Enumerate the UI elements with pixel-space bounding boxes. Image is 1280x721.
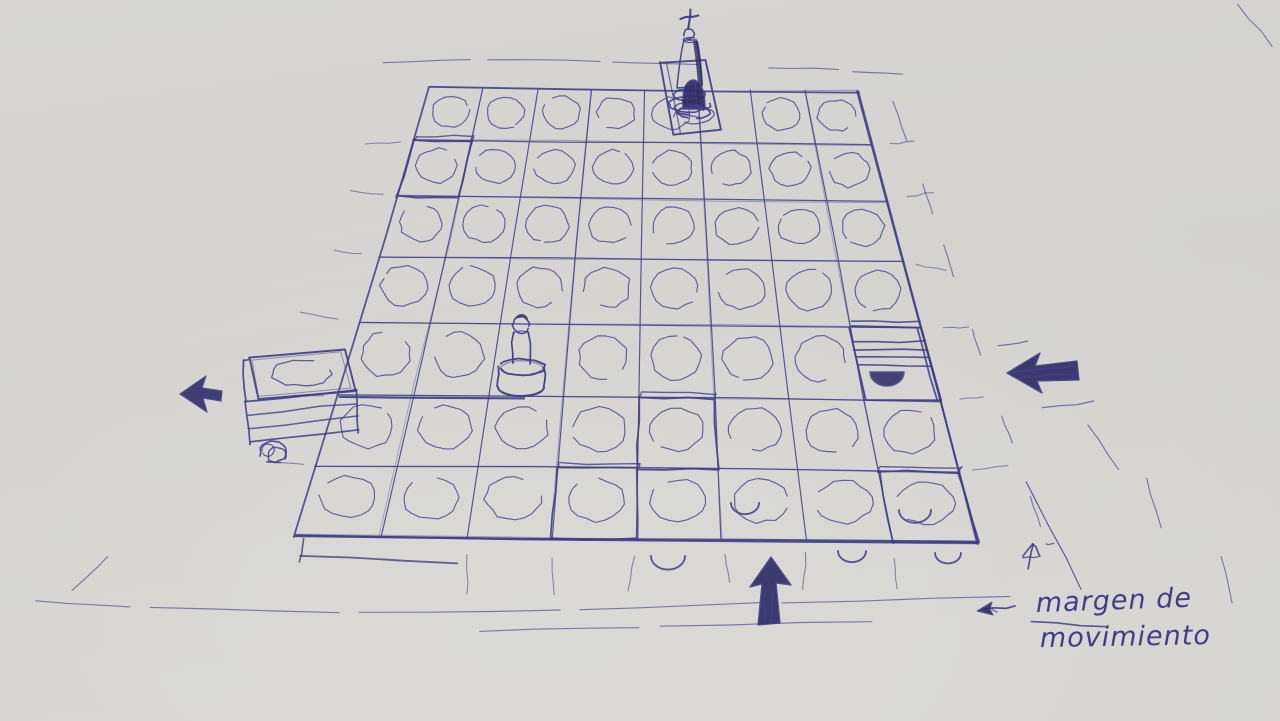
board-sketch: margen de movimiento bbox=[0, 0, 1280, 721]
annotation-line-1: margen de bbox=[1035, 583, 1192, 619]
annotation-line-2: movimiento bbox=[1040, 620, 1211, 654]
sketch-photo: margen de movimiento bbox=[0, 0, 1280, 721]
